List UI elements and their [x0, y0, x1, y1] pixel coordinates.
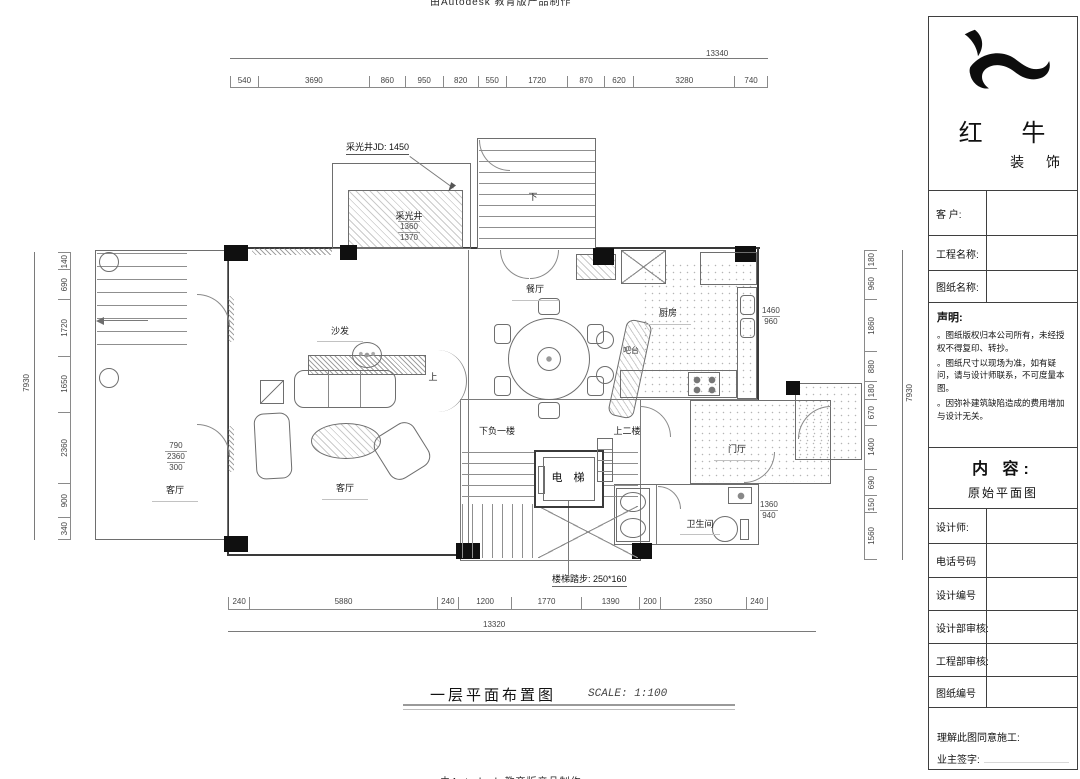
bath-side-dims: 1360 940 — [758, 500, 780, 521]
design-review-value — [987, 611, 1077, 643]
dim-value: 1460 — [760, 306, 782, 316]
plan-title: 一层平面布置图 — [430, 684, 556, 705]
lightwell-dim-2: 1370 — [398, 232, 420, 243]
dim-segment: 1720 — [58, 299, 70, 356]
row-eng-review: 工程部审核: — [929, 644, 1077, 677]
room-sublabel-line — [317, 341, 363, 342]
project-name-value — [987, 236, 1077, 270]
design-no-value — [987, 578, 1077, 610]
shower-basin — [728, 487, 752, 504]
dim-total-line-bottom — [228, 631, 816, 632]
dim-segment: 670 — [865, 399, 877, 425]
stair-treads-bottom — [462, 504, 536, 558]
lightwell-dim-1: 1360 — [398, 221, 420, 232]
statement-heading: 声明: — [937, 309, 1071, 325]
dim-chain-right: 180960186088018067014006901501560 — [864, 250, 877, 560]
row-drawing-no: 图纸编号 — [929, 677, 1077, 708]
stair-leader-line — [568, 500, 569, 574]
row-customer: 客 户: — [929, 191, 1077, 236]
dim-segment: 3690 — [258, 76, 369, 87]
living-left-dims: 790 2360 300 — [165, 441, 187, 473]
dim-total-right: 7930 — [905, 384, 914, 402]
side-table — [260, 380, 284, 404]
drawing-name-value — [987, 271, 1077, 302]
title-underline-2 — [403, 709, 735, 710]
dim-segment: 540 — [230, 76, 258, 87]
bath-partition — [656, 485, 657, 544]
row-designer: 设计师: — [929, 509, 1077, 544]
dim-segment: 5880 — [249, 597, 436, 609]
label-bar: 吧台 — [623, 346, 639, 355]
dim-value: 960 — [762, 316, 779, 327]
dim-segment: 1390 — [581, 597, 640, 609]
dim-segment: 860 — [369, 76, 405, 87]
statement-item: 。因弥补建筑缺陷造成的费用增加与设计无关。 — [937, 397, 1071, 423]
column — [593, 248, 614, 265]
row-project: 工程名称: — [929, 236, 1077, 271]
dim-segment: 150 — [865, 495, 877, 512]
brand-suffix: 装 饰 — [1010, 152, 1077, 172]
room-sublabel-line — [645, 324, 691, 325]
row-drawing-name: 图纸名称: — [929, 271, 1077, 303]
rednull-bull-logo — [947, 25, 1059, 111]
bar-stool — [596, 331, 614, 349]
label-stair-note: 楼梯踏步: 250*160 — [552, 572, 627, 587]
dim-total-left: 7930 — [22, 374, 31, 392]
row-phone: 电话号码 — [929, 544, 1077, 578]
dim-segment: 880 — [865, 351, 877, 381]
dim-segment: 140 — [58, 252, 70, 269]
label-down-b1: 下负一楼 — [479, 426, 515, 436]
dim-segment: 960 — [865, 268, 877, 299]
toilet-bowl — [712, 516, 738, 542]
kitchen-counter-top — [700, 252, 757, 285]
statement-item: 。图纸尺寸以现场为准，如有疑问，请与设计师联系，不可度量本图。 — [937, 357, 1071, 395]
label-up-2f: 上二楼 — [613, 426, 640, 436]
plan-scale: SCALE: 1:100 — [588, 688, 667, 700]
design-no-label: 设计编号 — [929, 578, 987, 610]
customer-value — [987, 191, 1077, 235]
room-label-living: 客厅 — [336, 483, 354, 493]
brand-cell: 红 牛 装 饰 — [929, 17, 1077, 191]
column — [340, 245, 357, 260]
terrace-column-circle — [99, 368, 119, 388]
eng-review-label: 工程部审核: — [929, 644, 987, 676]
label-sofa: 沙发 — [331, 326, 349, 336]
content-heading: 内 容: — [972, 455, 1034, 479]
row-sign: 业主签字: — [929, 746, 1077, 771]
wash-basin — [620, 492, 646, 512]
dim-segment: 1650 — [58, 356, 70, 411]
dim-segment: 1560 — [865, 512, 877, 560]
dim-value: 2360 — [165, 451, 187, 462]
wall-kitchen-east — [757, 247, 759, 401]
title-block: 红 牛 装 饰 客 户: 工程名称: 图纸名称: 声明: 。图纸版权归本公司所有… — [928, 16, 1078, 770]
project-name-label: 工程名称: — [929, 236, 987, 270]
design-review-label: 设计部审核: — [929, 611, 987, 643]
dim-total-top: 13340 — [706, 49, 728, 58]
dim-segment: 900 — [58, 483, 70, 517]
row-agree: 理解此图同意施工: — [929, 708, 1077, 746]
dim-segment: 820 — [443, 76, 478, 87]
dim-segment: 740 — [734, 76, 768, 87]
statement-cell: 声明: 。图纸版权归本公司所有，未经授权不得复印、转抄。 。图纸尺寸以现场为准，… — [929, 303, 1077, 448]
drawing-no-value — [987, 677, 1077, 707]
terrace-column-circle — [99, 252, 119, 272]
dim-total-bottom: 13320 — [483, 620, 505, 629]
dim-segment: 1200 — [458, 597, 511, 609]
eng-review-value — [987, 644, 1077, 676]
dim-chain-bottom: 24058802401200177013902002350240 — [228, 597, 768, 610]
foyer-cabinet — [597, 438, 613, 482]
room-label-bath: 卫生间 — [686, 519, 713, 529]
coffee-table — [311, 423, 381, 459]
column — [224, 536, 248, 552]
dim-segment: 950 — [405, 76, 443, 87]
step-arc — [438, 350, 467, 412]
stair-treads-left — [462, 452, 534, 500]
row-design-review: 设计部审核: — [929, 611, 1077, 644]
stove — [688, 372, 720, 396]
table-centerpiece — [537, 347, 561, 371]
decor-crown — [352, 342, 382, 368]
phone-label: 电话号码 — [929, 544, 987, 577]
dim-total-line-left — [34, 252, 35, 540]
dim-segment: 180 — [865, 381, 877, 399]
room-sublabel-line — [322, 499, 368, 500]
door-arc — [530, 250, 559, 279]
dim-segment: 620 — [604, 76, 634, 87]
direction-arrow-head — [96, 317, 104, 325]
room-label-living-left: 客厅 — [166, 485, 184, 495]
designer-label: 设计师: — [929, 509, 987, 543]
dim-segment: 2360 — [58, 412, 70, 483]
sofa-three-seat — [294, 370, 396, 408]
label-down: 下 — [528, 192, 537, 202]
dim-segment: 240 — [437, 597, 458, 609]
signature-line — [984, 762, 1069, 763]
dim-value: 940 — [760, 510, 777, 521]
room-sublabel-line — [714, 460, 760, 461]
dim-segment: 1720 — [506, 76, 568, 87]
lightwell-label: 采光井 — [393, 211, 424, 221]
toilet-tank — [740, 519, 749, 540]
dim-value: 1360 — [758, 500, 780, 510]
dim-segment: 240 — [746, 597, 768, 609]
lightwell-dims: 采光井 1360 1370 — [386, 211, 432, 243]
dim-segment: 690 — [58, 269, 70, 299]
sofa-single-left — [253, 412, 292, 480]
dim-total-line-right — [902, 250, 903, 560]
dim-total-line-top — [230, 58, 768, 59]
column — [786, 381, 800, 395]
dining-chair — [494, 324, 511, 344]
customer-label: 客 户: — [929, 191, 987, 235]
bar-stool — [596, 366, 614, 384]
column — [224, 245, 248, 261]
dim-chain-top: 540369086095082055017208706203280740 — [230, 76, 768, 88]
wash-basin — [620, 518, 646, 538]
lightwell-leader-label: 采光井JD: 1450 — [346, 140, 409, 155]
dim-segment: 240 — [228, 597, 249, 609]
door-arc — [500, 250, 529, 279]
dim-segment: 690 — [865, 469, 877, 496]
sink-bowl — [740, 295, 755, 315]
elevator-door — [538, 466, 545, 494]
room-label-kitchen: 厨房 — [659, 308, 677, 318]
room-label-dining: 餐厅 — [526, 284, 544, 294]
brand-name: 红 牛 — [945, 113, 1062, 148]
kitchen-side-dims: 1460 960 — [760, 306, 782, 327]
content-value: 原始平面图 — [968, 484, 1038, 501]
autodesk-watermark-top: 由Autodesk 教育版产品制作 — [430, 0, 571, 8]
room-sublabel-line — [680, 534, 720, 535]
dining-chair — [494, 376, 511, 396]
content-cell: 内 容: 原始平面图 — [929, 448, 1077, 509]
dim-segment: 340 — [58, 517, 70, 540]
sink-bowl — [740, 318, 755, 338]
door-arc — [640, 406, 671, 437]
title-underline-1 — [403, 704, 735, 706]
drawing-no-label: 图纸编号 — [929, 677, 987, 707]
dim-value: 300 — [167, 462, 184, 473]
dim-segment: 870 — [567, 76, 603, 87]
window-hatch-top — [252, 248, 332, 255]
dim-segment: 180 — [865, 250, 877, 268]
statement-item: 。图纸版权归本公司所有，未经授权不得复印、转抄。 — [937, 329, 1071, 355]
room-label-foyer: 门厅 — [728, 444, 746, 454]
row-design-no: 设计编号 — [929, 578, 1077, 611]
stair-core-south — [460, 560, 641, 561]
dim-segment: 2350 — [660, 597, 746, 609]
room-sublabel-line — [512, 300, 558, 301]
dim-segment: 1400 — [865, 425, 877, 469]
dim-segment: 3280 — [633, 76, 734, 87]
dim-segment: 550 — [478, 76, 506, 87]
wall-living-south — [227, 554, 470, 556]
stair-core-west — [460, 400, 461, 561]
dim-segment: 1860 — [865, 299, 877, 351]
drawing-sheet: 由Autodesk 教育版产品制作 由Autodesk 教育版产品制作 — [0, 0, 1080, 779]
dim-segment: 1770 — [511, 597, 581, 609]
designer-value — [987, 509, 1077, 543]
elevator-label: 电 梯 — [546, 469, 594, 485]
room-sublabel-line — [152, 501, 198, 502]
dim-segment: 200 — [639, 597, 659, 609]
dim-value: 790 — [167, 441, 184, 451]
autodesk-watermark-bottom: 由Autodesk 教育版产品制作 — [440, 773, 581, 779]
owner-sign-label: 业主签字: — [937, 751, 980, 766]
label-up: 上 — [428, 372, 437, 382]
direction-arrow-line — [104, 320, 148, 321]
dining-chair — [538, 402, 560, 419]
agree-label: 理解此图同意施工: — [937, 729, 1020, 744]
phone-value — [987, 544, 1077, 577]
armchair-right — [369, 418, 435, 485]
drawing-name-label: 图纸名称: — [929, 271, 987, 302]
dim-chain-left: 140690172016502360900340 — [58, 252, 71, 540]
